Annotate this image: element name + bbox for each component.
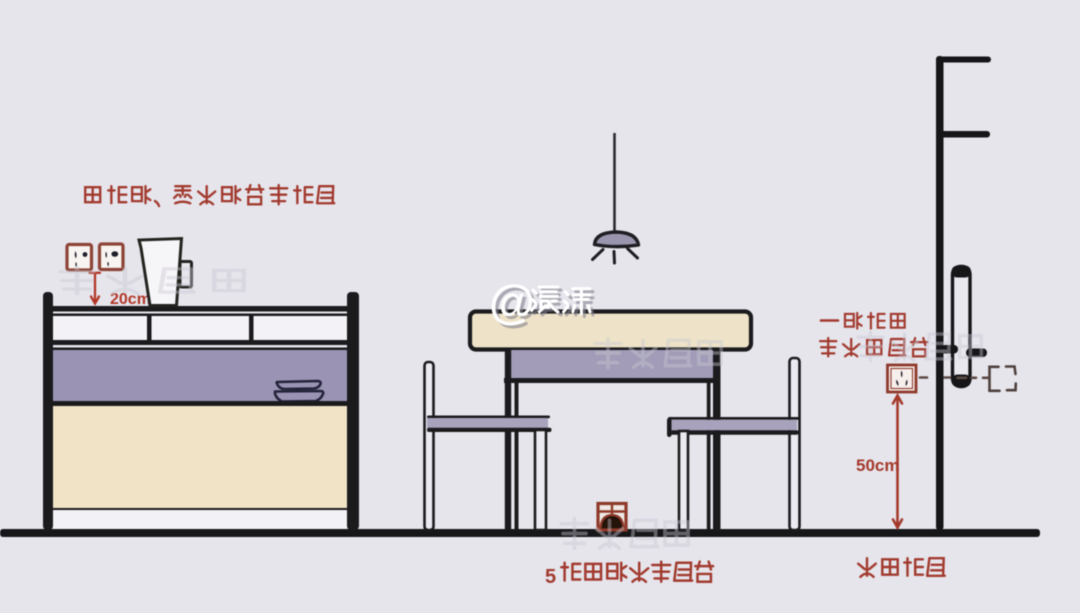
svg-text:5: 5: [545, 566, 556, 588]
svg-text:20cm: 20cm: [110, 291, 151, 308]
svg-text:50cm: 50cm: [856, 456, 899, 475]
svg-text:@: @: [489, 275, 535, 328]
